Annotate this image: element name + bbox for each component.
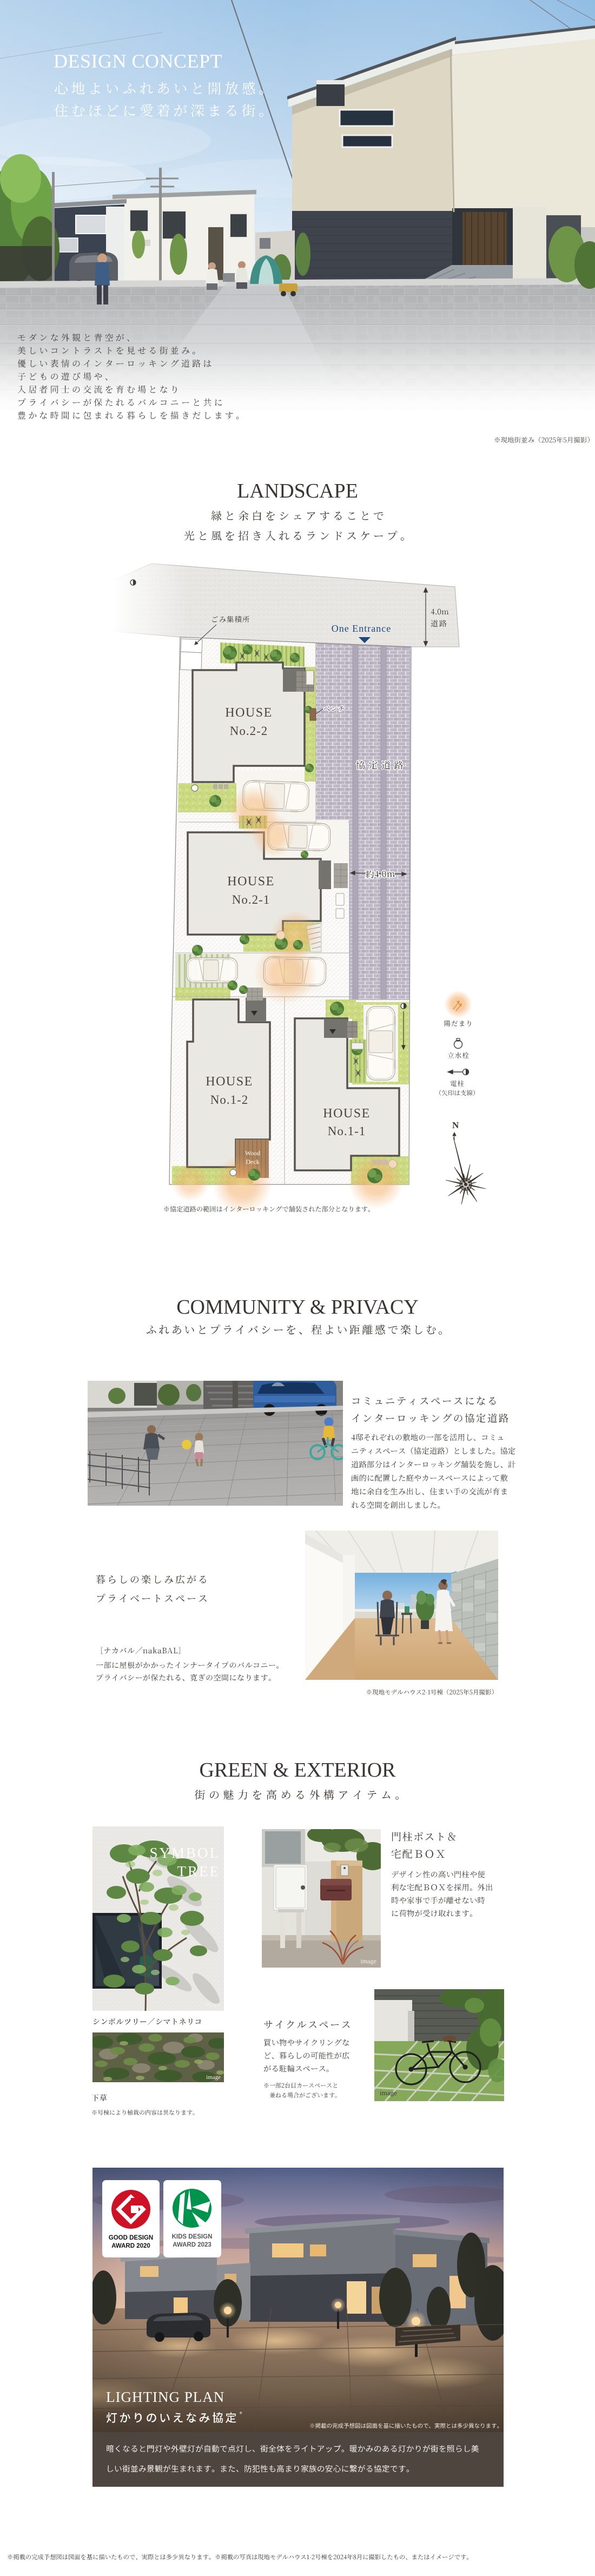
svg-text:Deck: Deck [246,1158,259,1166]
svg-text:AWARD 2023: AWARD 2023 [173,2242,211,2248]
svg-text:HOUSE: HOUSE [323,1107,371,1121]
svg-text:N: N [452,1120,459,1130]
svg-text:image: image [361,1957,376,1965]
svg-text:No.1-2: No.1-2 [210,1093,249,1107]
svg-text:One Entrance: One Entrance [332,623,391,634]
svg-text:image: image [205,2001,221,2008]
svg-text:SYMBOL: SYMBOL [149,1845,220,1861]
svg-text:image: image [206,2074,221,2081]
svg-text:No.2-1: No.2-1 [232,893,270,906]
svg-text:TREE: TREE [177,1863,221,1879]
svg-text:GOOD DESIGN: GOOD DESIGN [109,2235,153,2241]
svg-text:HOUSE: HOUSE [225,706,273,720]
svg-text:AWARD 2020: AWARD 2020 [111,2243,150,2249]
svg-text:KIDS DESIGN: KIDS DESIGN [172,2234,213,2240]
svg-text:No.2-2: No.2-2 [230,724,268,738]
svg-text:HOUSE: HOUSE [206,1075,253,1089]
svg-text:Wood: Wood [245,1149,260,1157]
svg-text:HOUSE: HOUSE [227,875,275,889]
svg-text:No.1-1: No.1-1 [328,1124,366,1138]
svg-text:image: image [380,2089,397,2097]
